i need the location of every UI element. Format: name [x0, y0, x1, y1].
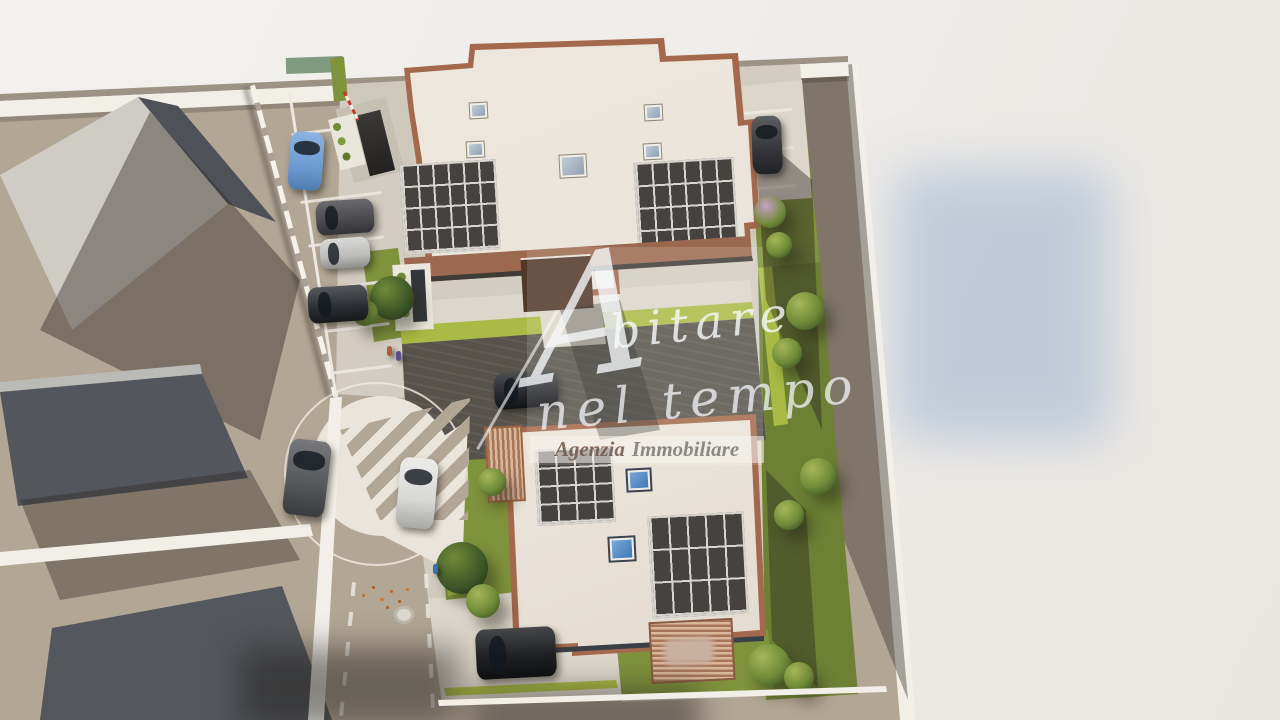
flowering-shrub [754, 196, 786, 228]
backdrop-reflection [895, 170, 1110, 440]
tree [478, 468, 506, 496]
leaf-dot [390, 590, 393, 593]
car-windshield [317, 292, 332, 319]
tree [784, 662, 814, 692]
render-canvas: A bitare nel tempo Agenzia Immobiliare [0, 0, 1280, 720]
car-blue [287, 131, 325, 191]
skylight-blue [627, 469, 650, 490]
autumn-leaves [360, 582, 415, 612]
leaf-dot [406, 588, 409, 591]
solar-array-north-left [399, 159, 500, 255]
tree [766, 232, 792, 258]
skylight [470, 103, 488, 119]
leaf-dot [362, 594, 365, 597]
skylight-center [559, 154, 586, 177]
leaf-dot [398, 600, 401, 603]
skylight [645, 105, 663, 121]
pergola-furniture [663, 637, 714, 666]
tree [466, 584, 500, 618]
banner-word-agenzia: Agenzia [555, 437, 625, 462]
person [433, 564, 438, 574]
person [387, 346, 392, 356]
car-windshield [404, 467, 433, 486]
car-windshield [324, 205, 338, 230]
car-suv-black [475, 626, 558, 680]
skylight [467, 142, 485, 158]
leaf-dot [386, 606, 389, 609]
planter-green [337, 136, 347, 146]
pergola [648, 618, 735, 684]
car-dark-bay [751, 115, 783, 174]
tree [800, 458, 836, 494]
car-white-road [395, 456, 439, 529]
planter-green [332, 122, 342, 132]
watermark-banner: Agenzia Immobiliare [530, 436, 764, 463]
leaf-dot [380, 598, 384, 601]
car-windshield [294, 140, 320, 156]
car-windshield [488, 636, 507, 673]
banner-word-immobiliare: Immobiliare [632, 437, 739, 462]
car-windshield [755, 124, 778, 139]
leaf-dot [372, 586, 375, 589]
solar-array-south-right [647, 512, 748, 619]
car-black [307, 284, 369, 324]
tree [774, 500, 804, 530]
planter-green [342, 152, 352, 162]
car-windshield [293, 450, 326, 472]
skylight [644, 144, 662, 160]
car-dark-gray [315, 198, 375, 236]
car-windshield [327, 243, 339, 265]
shadow-bottom-west [240, 648, 460, 720]
car-silver [319, 236, 371, 269]
person [396, 351, 401, 361]
skylight-blue [609, 537, 634, 560]
